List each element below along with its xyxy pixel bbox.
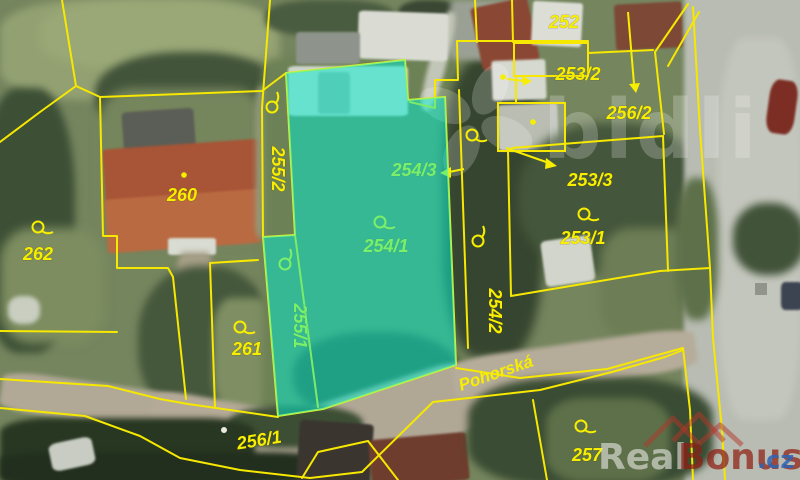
map-canvas[interactable]: bidli 254/3 254/1 255/1 252 253/2 256/2 … <box>0 0 800 480</box>
corner-watermark: Real Bonus .cz <box>0 0 800 480</box>
corner-watermark-real: Real <box>598 437 687 478</box>
corner-watermark-cz: .cz <box>757 446 794 474</box>
